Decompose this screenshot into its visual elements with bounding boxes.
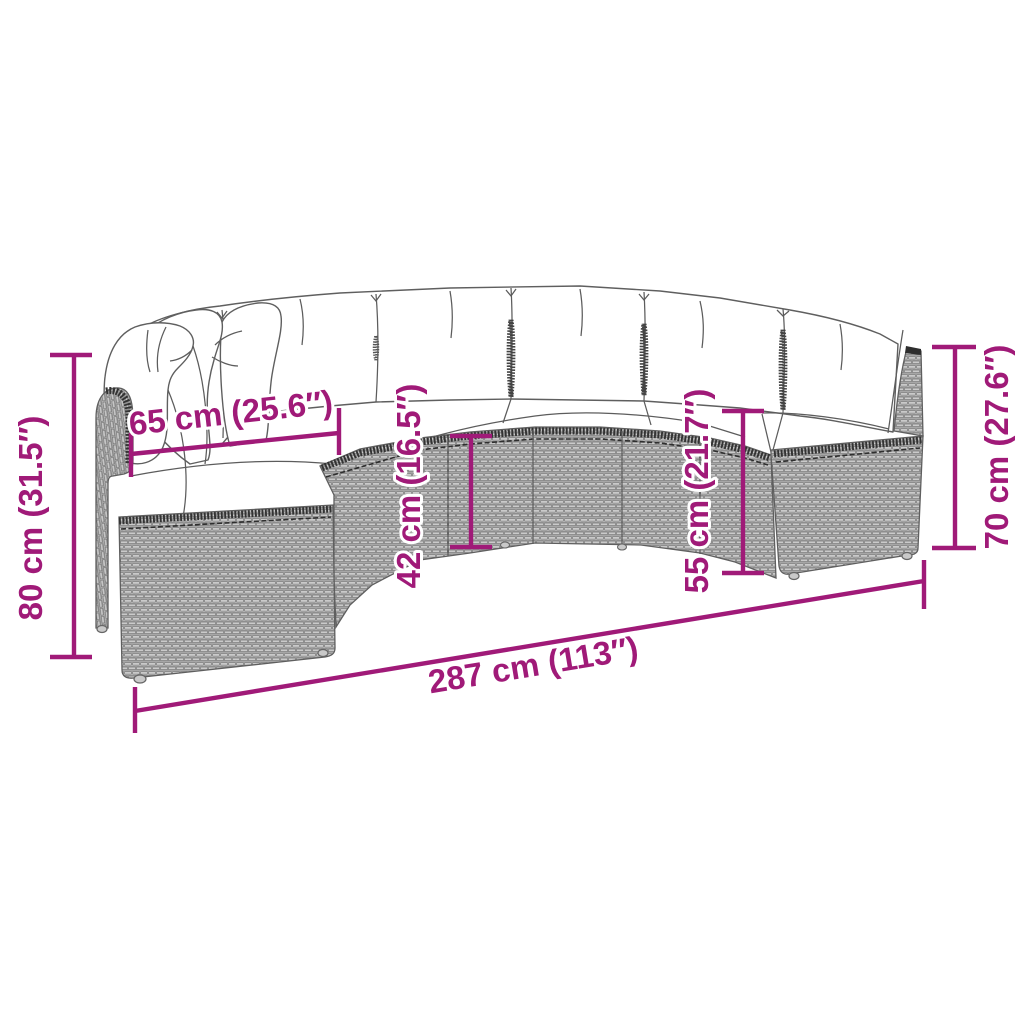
svg-text:70 cm (27.6″): 70 cm (27.6″) [978,345,1015,550]
svg-text:42 cm (16.5″): 42 cm (16.5″) [390,384,427,589]
svg-text:55 cm (21.7″): 55 cm (21.7″) [678,389,715,594]
svg-text:80 cm (31.5″): 80 cm (31.5″) [12,416,49,621]
